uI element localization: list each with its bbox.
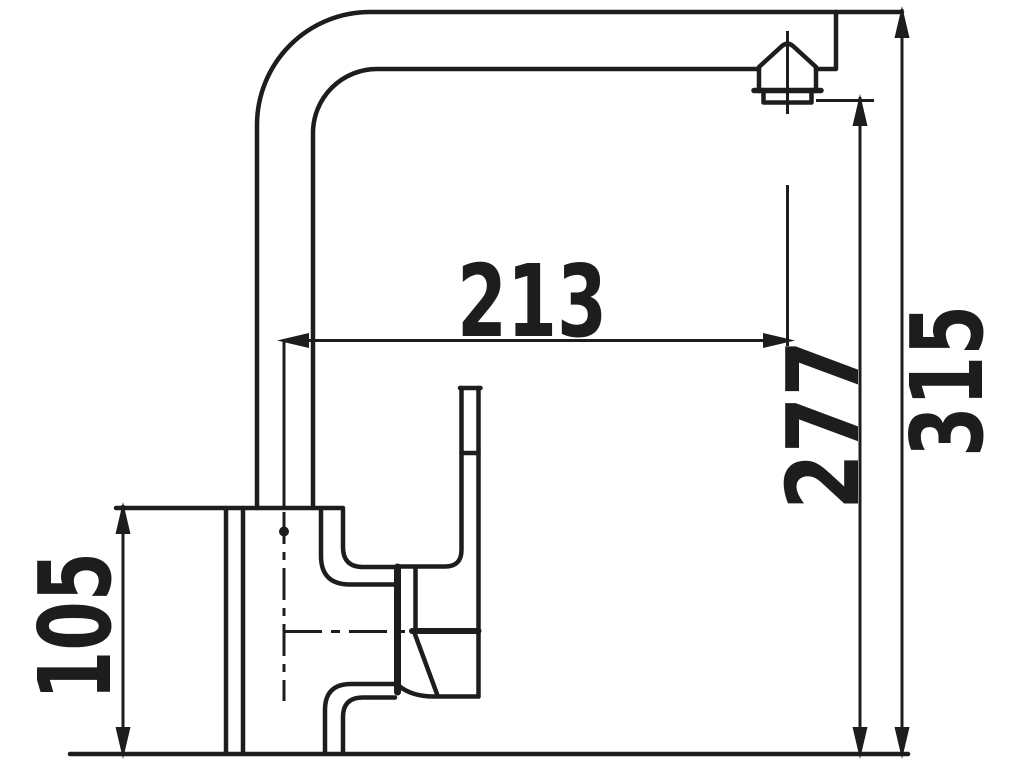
drawing-canvas: 213 277 315 105 [0, 0, 1024, 768]
handle-bottom-arc [399, 686, 479, 697]
body-lower-step-inner [343, 698, 395, 753]
faucet-technical-drawing: 213 277 315 105 [0, 0, 1024, 768]
spout-end-cap [816, 12, 836, 69]
body-upper-step-inner [343, 510, 395, 567]
body-lower-step-outer [325, 684, 395, 752]
dimension-body-height: 105 [17, 502, 134, 759]
handle-underside-line [397, 388, 462, 567]
arrowhead-left [277, 333, 309, 348]
dim-text-213: 213 [457, 243, 607, 360]
dimension-outlet-height: 277 [765, 94, 882, 759]
aerator [754, 31, 821, 114]
centerline-dot [279, 527, 289, 537]
arrowhead-top [853, 94, 868, 126]
dimension-horizontal-reach: 213 [277, 185, 795, 507]
handle-lever [397, 388, 481, 697]
dim-text-315: 315 [889, 305, 1006, 457]
body-upper-step-outer [321, 510, 395, 585]
dimension-total-height: 315 [889, 6, 1006, 759]
dim-text-105: 105 [17, 552, 134, 700]
dim-text-277: 277 [765, 340, 882, 510]
handle-slant-edge [415, 633, 438, 694]
